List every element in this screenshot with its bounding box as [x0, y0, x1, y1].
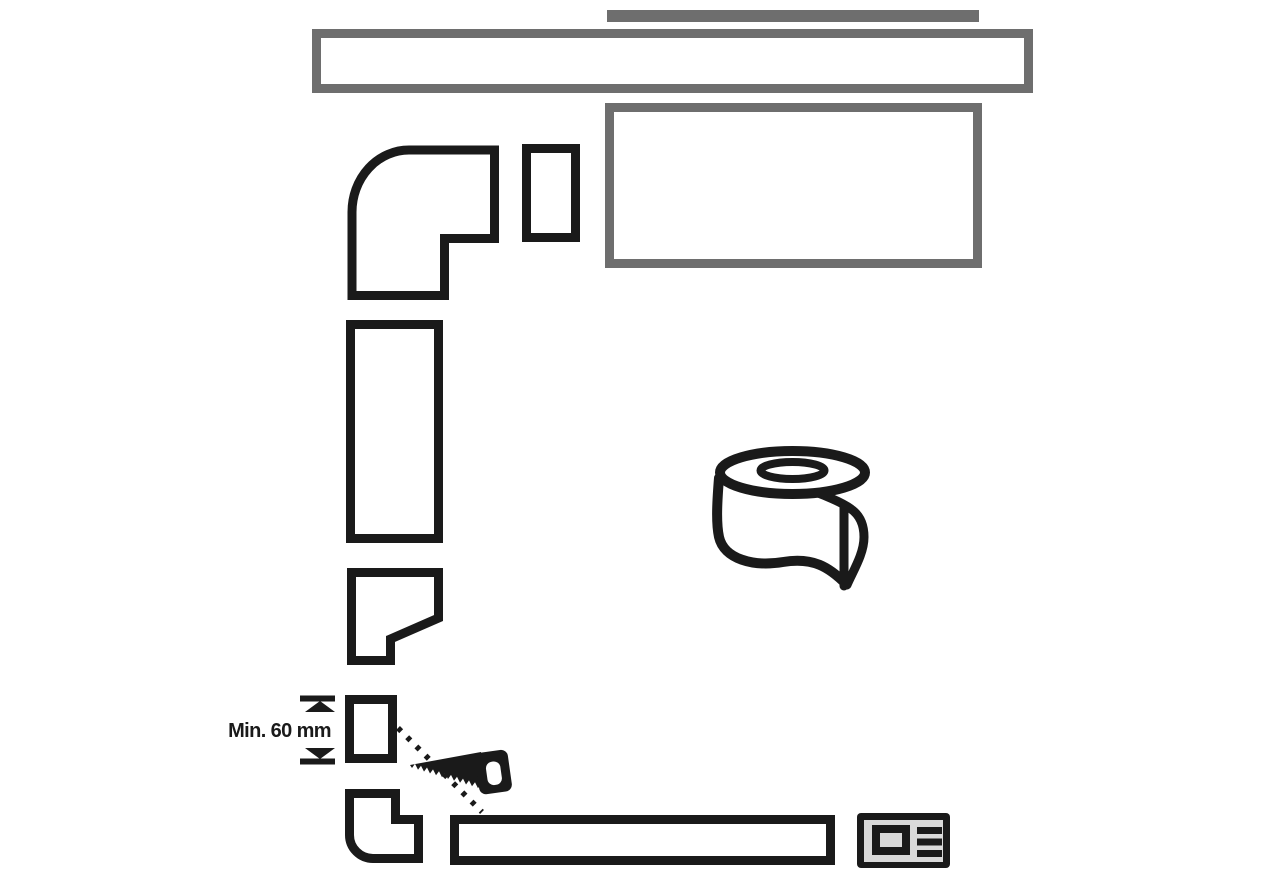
rating-plate-logo-inner — [880, 833, 902, 847]
dimension-arrow-down-icon — [305, 748, 335, 759]
cabinet-side-panel — [610, 108, 978, 264]
wall-strip-gray-bar — [607, 10, 979, 22]
saw-blade — [410, 752, 484, 789]
elbow-duct-bottom — [350, 794, 419, 859]
rating-plate-text-bar — [917, 839, 942, 846]
tape-roll-hole — [761, 462, 825, 479]
dimension-arrow-up-icon — [305, 701, 335, 712]
duct-connector-piece — [527, 149, 576, 238]
horizontal-duct-section — [455, 820, 831, 861]
min-distance-label: Min. 60 mm — [228, 720, 331, 742]
cut-duct-piece — [350, 700, 393, 759]
saw-handle — [474, 749, 513, 795]
transition-duct-piece — [352, 573, 439, 661]
installation-diagram: Min. 60 mm — [0, 0, 1280, 880]
rating-plate-icon — [857, 813, 950, 868]
min-height-dimension: Min. 60 mm — [228, 699, 335, 762]
elbow-duct-top — [352, 150, 495, 296]
tape-roll-icon — [717, 451, 865, 586]
rating-plate-text-bar — [917, 850, 942, 857]
countertop-panel — [317, 34, 1029, 89]
straight-duct-section — [351, 325, 439, 539]
rating-plate-text-bar — [917, 827, 942, 834]
